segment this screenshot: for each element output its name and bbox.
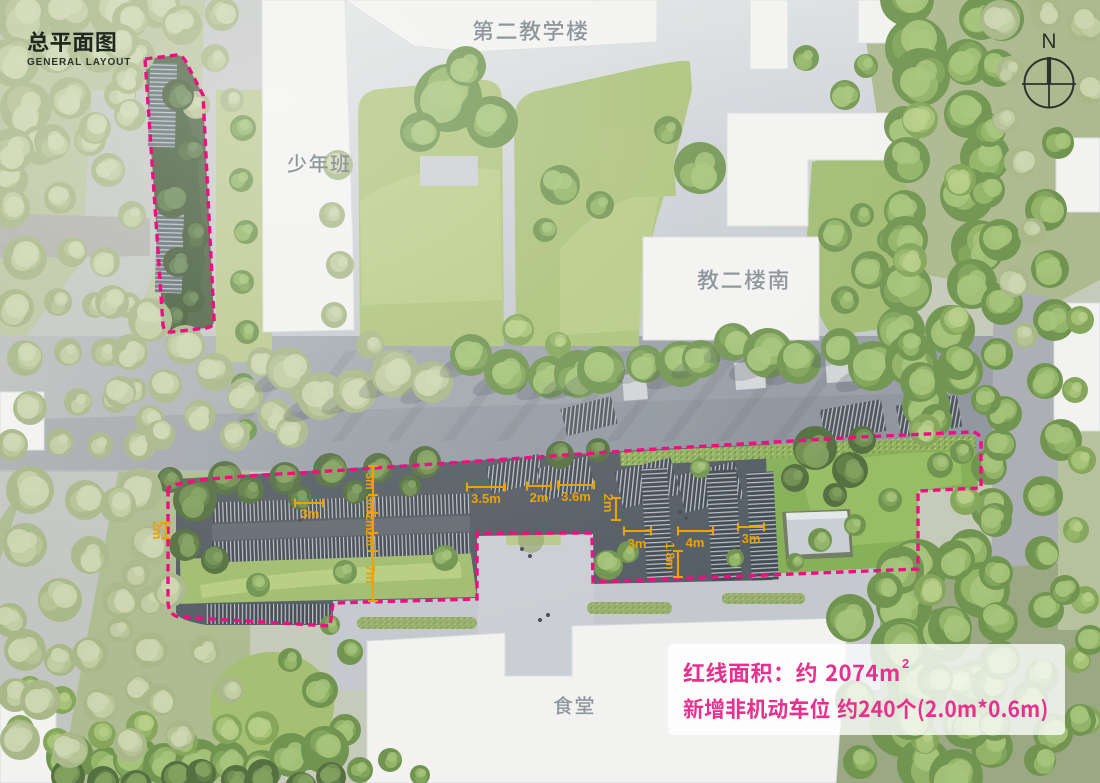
svg-text:3m: 3m [363, 495, 377, 512]
svg-text:2: 2 [902, 656, 909, 671]
svg-text:2m: 2m [530, 490, 549, 505]
svg-text:3m: 3m [628, 536, 647, 551]
svg-text:3m: 3m [301, 506, 320, 521]
svg-text:2m: 2m [363, 513, 377, 530]
svg-text:4m: 4m [686, 535, 705, 550]
svg-text:GENERAL LAYOUT: GENERAL LAYOUT [27, 57, 131, 68]
svg-text:2m: 2m [150, 521, 165, 540]
svg-text:3.6m: 3.6m [561, 489, 591, 504]
svg-text:3m: 3m [742, 531, 761, 546]
svg-text:N: N [1041, 30, 1056, 53]
svg-text:3m: 3m [363, 472, 377, 489]
svg-text:3.5m: 3.5m [471, 491, 501, 506]
svg-text:2m: 2m [363, 530, 375, 546]
svg-text:2m: 2m [601, 494, 616, 513]
svg-text:1.8m: 1.8m [663, 542, 677, 569]
svg-text:7m: 7m [363, 565, 378, 584]
